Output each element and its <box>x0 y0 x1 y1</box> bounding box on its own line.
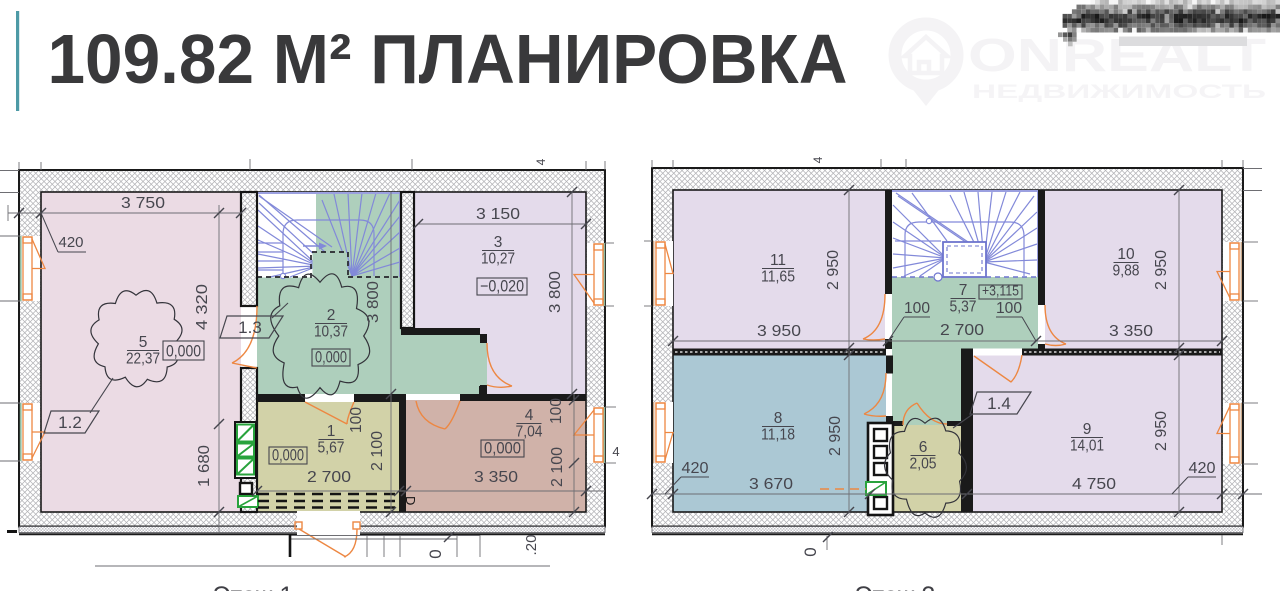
svg-text:2 100: 2 100 <box>549 447 566 487</box>
svg-text:100: 100 <box>548 398 565 424</box>
svg-text:100: 100 <box>904 300 930 317</box>
svg-text:2 100: 2 100 <box>369 431 386 471</box>
svg-text:4 750: 4 750 <box>1072 476 1116 493</box>
svg-text:0,000: 0,000 <box>272 447 304 465</box>
svg-text:3 800: 3 800 <box>547 271 564 313</box>
svg-text:0,000: 0,000 <box>315 349 347 367</box>
svg-text:10,37: 10,37 <box>314 324 348 341</box>
svg-text:1.3: 1.3 <box>238 318 262 337</box>
svg-text:420: 420 <box>59 235 84 251</box>
svg-text:7,04: 7,04 <box>516 424 543 441</box>
svg-text:5,37: 5,37 <box>950 299 977 316</box>
svg-text:Этаж 2: Этаж 2 <box>855 582 936 591</box>
svg-text:2 950: 2 950 <box>1153 250 1170 290</box>
svg-text:14,01: 14,01 <box>1070 438 1104 455</box>
svg-text:1.4: 1.4 <box>987 394 1011 413</box>
svg-text:−0,020: −0,020 <box>480 278 524 296</box>
svg-text:11: 11 <box>770 252 786 269</box>
svg-text:3 350: 3 350 <box>474 469 518 486</box>
svg-text:2 700: 2 700 <box>940 322 984 339</box>
svg-text:1.2: 1.2 <box>58 413 82 432</box>
svg-text:11,18: 11,18 <box>761 427 795 444</box>
svg-text:2 950: 2 950 <box>827 416 844 456</box>
svg-text:2 950: 2 950 <box>825 250 842 290</box>
svg-text:10,27: 10,27 <box>481 251 515 268</box>
svg-text:3: 3 <box>494 234 503 251</box>
svg-text:0,000: 0,000 <box>484 440 521 458</box>
svg-text:10: 10 <box>1117 246 1135 263</box>
svg-text:3 800: 3 800 <box>365 281 382 323</box>
svg-text:6: 6 <box>919 439 928 456</box>
svg-text:4 320: 4 320 <box>194 284 211 330</box>
svg-text:4: 4 <box>525 407 534 424</box>
svg-text:9: 9 <box>1083 421 1092 438</box>
svg-text:3 670: 3 670 <box>749 476 793 493</box>
svg-text:3 950: 3 950 <box>757 323 801 340</box>
svg-text:0: 0 <box>801 547 820 556</box>
svg-text:4: 4 <box>534 158 548 165</box>
svg-text:420: 420 <box>1189 460 1216 477</box>
svg-text:.20: .20 <box>523 535 540 556</box>
svg-text:4: 4 <box>612 444 619 459</box>
svg-text:1 680: 1 680 <box>196 445 213 487</box>
svg-text:0: 0 <box>426 549 445 558</box>
svg-text:100: 100 <box>348 407 365 433</box>
svg-text:5: 5 <box>139 334 148 351</box>
svg-text:3 350: 3 350 <box>1109 323 1153 340</box>
svg-text:2,05: 2,05 <box>910 456 937 473</box>
svg-text:3 750: 3 750 <box>121 195 165 212</box>
svg-text:0,000: 0,000 <box>166 343 201 361</box>
svg-text:100: 100 <box>996 300 1022 317</box>
svg-text:D: D <box>403 496 418 505</box>
svg-text:420: 420 <box>682 460 709 477</box>
svg-text:3 150: 3 150 <box>476 206 520 223</box>
svg-text:9,88: 9,88 <box>1113 263 1140 280</box>
svg-text:2 700: 2 700 <box>307 469 351 486</box>
svg-text:Этаж 1: Этаж 1 <box>213 582 294 591</box>
svg-text:4: 4 <box>811 156 825 163</box>
svg-text:+3,115: +3,115 <box>982 284 1019 300</box>
svg-text:8: 8 <box>774 410 783 427</box>
svg-text:2 950: 2 950 <box>1153 411 1170 451</box>
svg-text:1: 1 <box>327 423 336 440</box>
svg-text:11,65: 11,65 <box>761 269 795 286</box>
svg-text:2: 2 <box>327 307 336 324</box>
svg-text:7: 7 <box>959 282 968 299</box>
svg-text:22,37: 22,37 <box>126 351 160 368</box>
svg-text:5,67: 5,67 <box>318 440 345 457</box>
